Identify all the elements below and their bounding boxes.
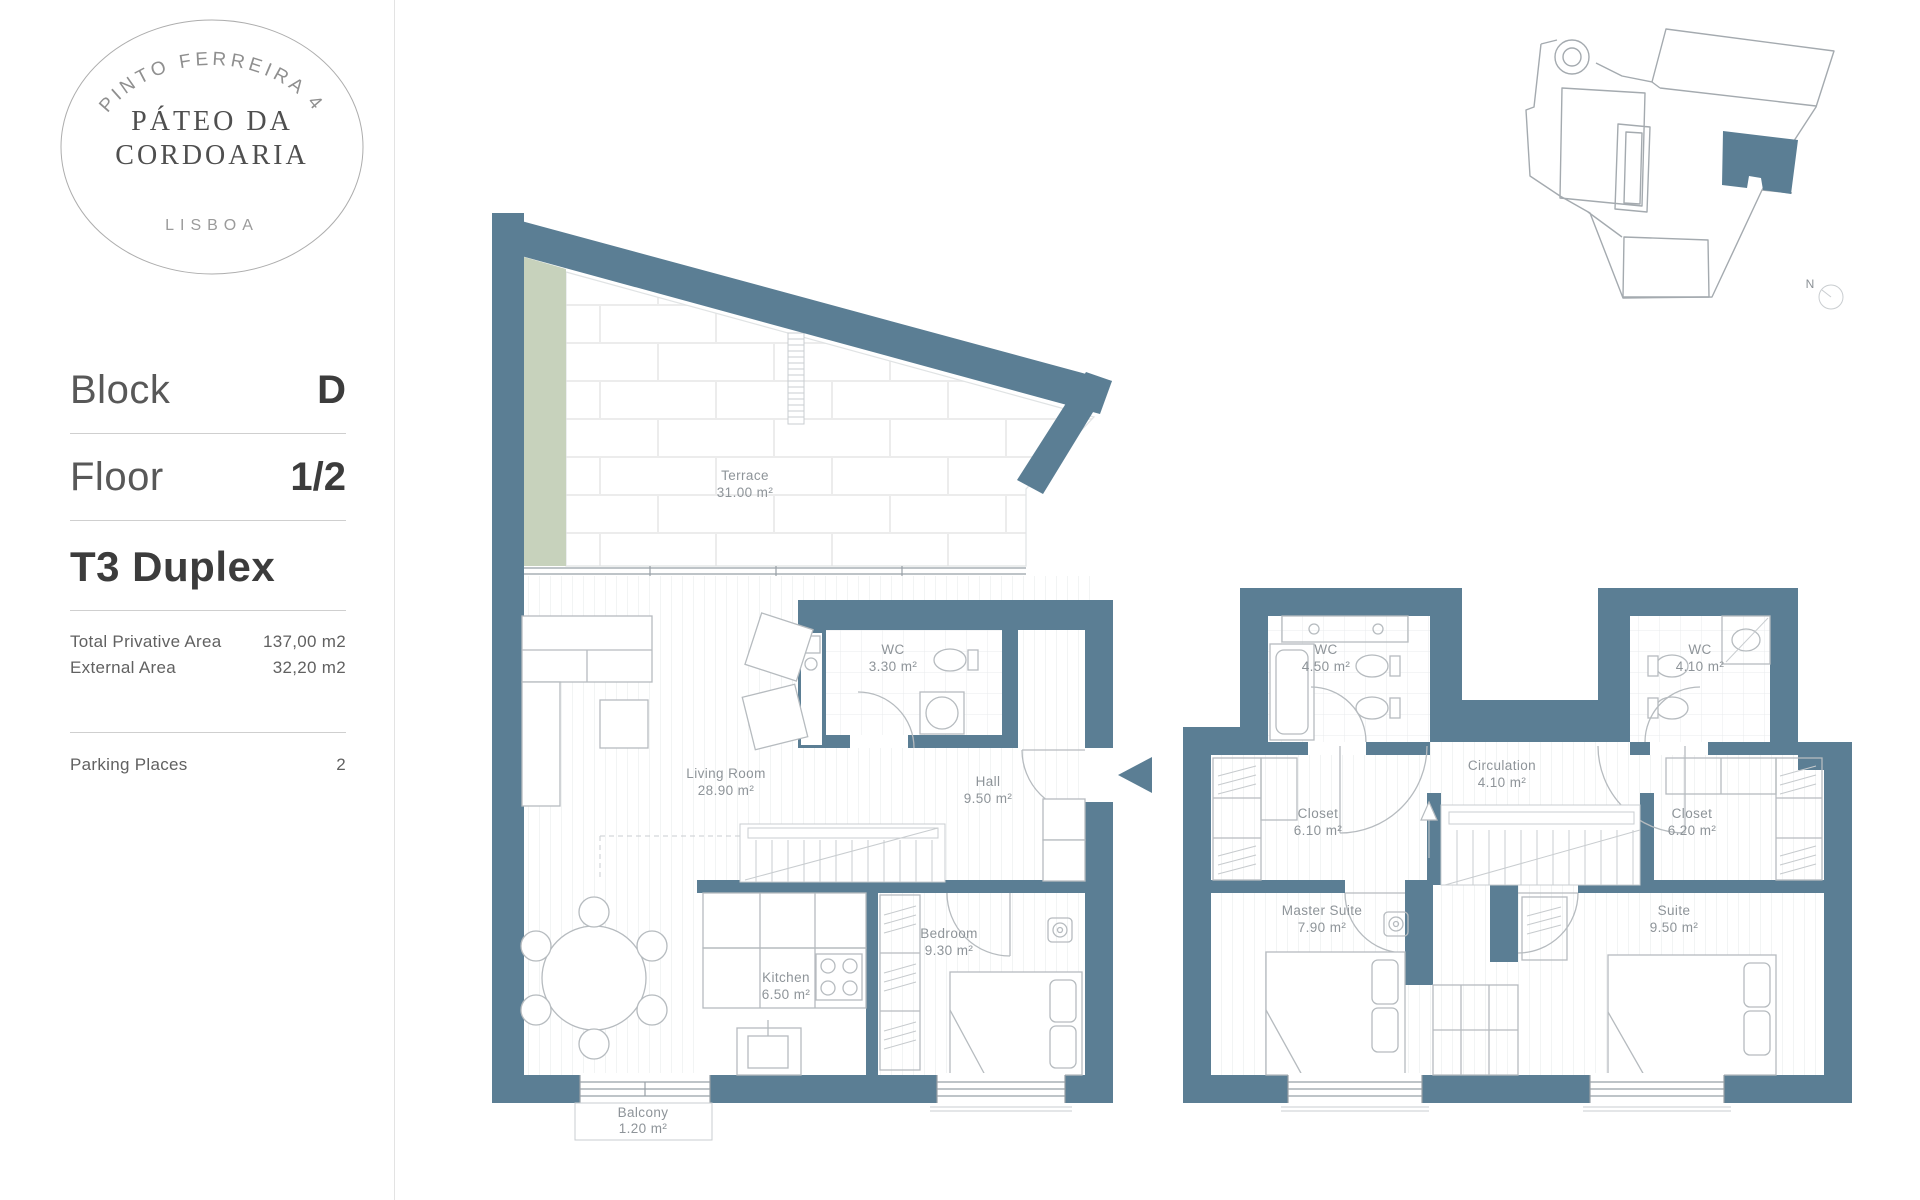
void-opening bbox=[1462, 585, 1598, 700]
room-area-bedroom: 9.30 m² bbox=[925, 943, 974, 958]
room-area-living: 28.90 m² bbox=[698, 783, 755, 798]
room-label-suite: Suite bbox=[1658, 903, 1691, 918]
room-area-suite: 9.50 m² bbox=[1650, 920, 1699, 935]
terrace-glass-door bbox=[524, 566, 1026, 576]
suite-window bbox=[1583, 1073, 1731, 1111]
room-area-wc-right: 4.10 m² bbox=[1676, 659, 1725, 674]
room-label-circulation: Circulation bbox=[1468, 758, 1536, 773]
floorplan-drawing: Terrace 31.00 m² WC 3.30 m² Living Room … bbox=[0, 0, 1920, 1200]
master-bed bbox=[1266, 952, 1405, 1075]
floor1-plan: Terrace 31.00 m² WC 3.30 m² Living Room … bbox=[492, 213, 1152, 1140]
wall bbox=[1183, 727, 1211, 1103]
toilet-tank bbox=[968, 650, 978, 670]
room-label-wc: WC bbox=[881, 642, 904, 657]
wall bbox=[1770, 588, 1798, 755]
entry-opening bbox=[1083, 748, 1115, 802]
room-label-balcony: Balcony bbox=[618, 1105, 669, 1120]
bedroom-window bbox=[930, 1073, 1072, 1111]
room-label-kitchen: Kitchen bbox=[762, 970, 810, 985]
room-area-closet-right: 6.20 m² bbox=[1668, 823, 1717, 838]
room-label-bedroom: Bedroom bbox=[920, 926, 978, 941]
wall bbox=[1640, 793, 1654, 885]
toilet-icon bbox=[934, 649, 966, 671]
master-window bbox=[1281, 1073, 1429, 1111]
wall bbox=[1002, 600, 1018, 748]
entry-arrow-icon bbox=[1118, 757, 1152, 793]
room-label-living: Living Room bbox=[686, 766, 765, 781]
terrace-planter bbox=[524, 257, 566, 566]
room-area-hall: 9.50 m² bbox=[964, 791, 1013, 806]
floorplan-sheet: PINTO FERREIRA 4 PÁTEO DA CORDOARIA LISB… bbox=[0, 0, 1920, 1200]
wall bbox=[1490, 880, 1518, 962]
room-label-hall: Hall bbox=[976, 774, 1001, 789]
toilet-icon bbox=[1356, 655, 1388, 677]
room-label-wc-right: WC bbox=[1688, 642, 1711, 657]
room-label-closet-right: Closet bbox=[1672, 806, 1713, 821]
wc-door-opening bbox=[850, 735, 908, 748]
room-area-closet-left: 6.10 m² bbox=[1294, 823, 1343, 838]
wall bbox=[798, 600, 1113, 630]
room-label-wc-left: WC bbox=[1314, 642, 1337, 657]
room-label-terrace: Terrace bbox=[721, 468, 769, 483]
site-key-plan bbox=[1526, 29, 1834, 298]
bath-right-floor bbox=[1630, 616, 1770, 742]
hall-cabinet bbox=[1043, 840, 1085, 881]
room-area-balcony: 1.20 m² bbox=[619, 1121, 668, 1136]
room-area-circulation: 4.10 m² bbox=[1478, 775, 1527, 790]
stairs-floor1 bbox=[740, 824, 945, 882]
wall bbox=[1211, 880, 1345, 893]
site-turret bbox=[1555, 40, 1589, 74]
wall bbox=[1405, 880, 1433, 985]
bidet-icon bbox=[1656, 697, 1688, 719]
stairs-floor2 bbox=[1421, 802, 1640, 885]
room-label-closet-left: Closet bbox=[1298, 806, 1339, 821]
hall-cabinet bbox=[1043, 799, 1085, 840]
room-area-master-suite: 7.90 m² bbox=[1298, 920, 1347, 935]
bath-left-door-opening bbox=[1308, 742, 1366, 755]
wall bbox=[492, 213, 524, 1103]
room-label-master-suite: Master Suite bbox=[1282, 903, 1363, 918]
room-area-wc-left: 4.50 m² bbox=[1302, 659, 1351, 674]
balcony-window bbox=[580, 1073, 710, 1105]
double-bed bbox=[950, 972, 1082, 1075]
wc-floor bbox=[826, 630, 1002, 735]
room-area-kitchen: 6.50 m² bbox=[762, 987, 811, 1002]
north-needle bbox=[1822, 290, 1831, 297]
site-highlighted-unit bbox=[1722, 131, 1798, 194]
suite-bed bbox=[1608, 955, 1776, 1075]
wall bbox=[1183, 1075, 1852, 1103]
room-area-wc: 3.30 m² bbox=[869, 659, 918, 674]
wall bbox=[1824, 742, 1852, 1103]
north-label: N bbox=[1806, 277, 1815, 291]
north-indicator: N bbox=[1806, 277, 1843, 309]
wall bbox=[866, 893, 878, 1075]
bidet-icon bbox=[1356, 697, 1388, 719]
room-area-terrace: 31.00 m² bbox=[717, 485, 774, 500]
floor2-plan: WC 4.50 m² WC 4.10 m² Closet 6.10 m² Cir… bbox=[1183, 585, 1852, 1111]
bath-right-door-opening bbox=[1650, 742, 1708, 755]
wall bbox=[1085, 600, 1113, 1075]
wall bbox=[1240, 588, 1268, 755]
terrace-louver bbox=[788, 333, 804, 424]
